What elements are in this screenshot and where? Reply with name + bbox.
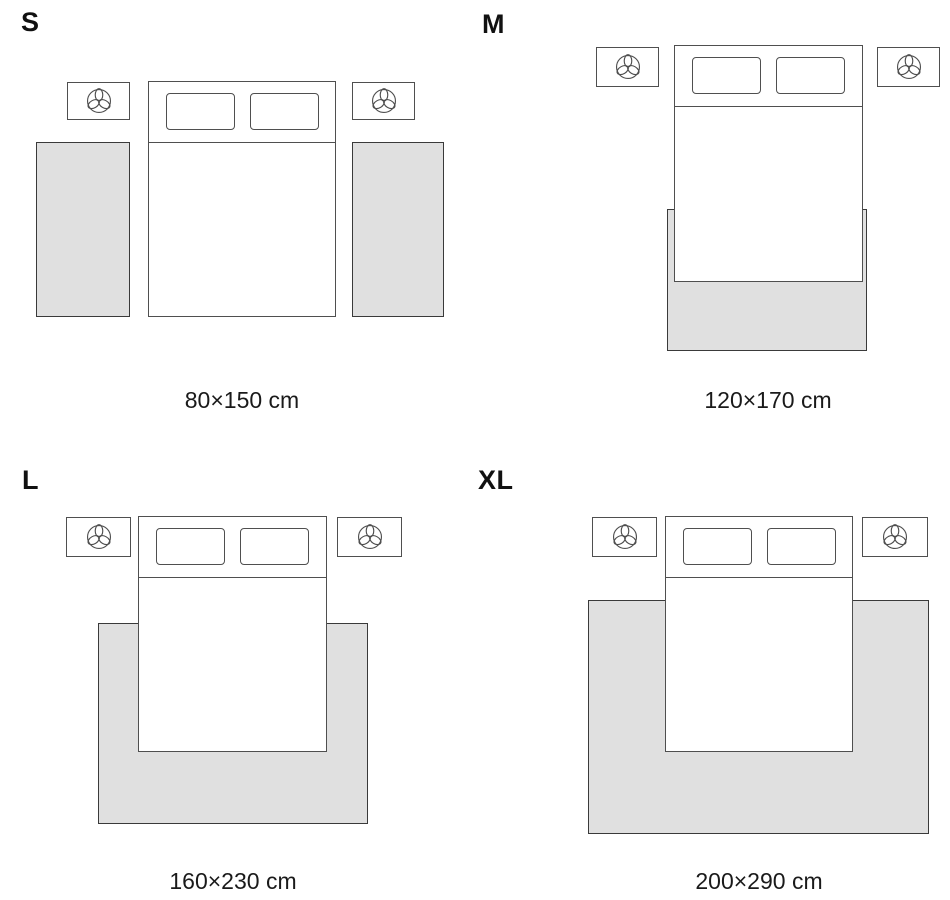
nightstand-left: [66, 517, 131, 557]
bed-headboard: [149, 82, 335, 143]
pillow-left: [692, 57, 761, 94]
pillow-right: [240, 528, 309, 565]
bed-headboard: [666, 517, 852, 578]
size-dimension-label: 200×290 cm: [609, 869, 909, 894]
bed: [674, 45, 863, 282]
plant-icon: [81, 83, 117, 119]
plant-icon: [610, 49, 646, 85]
plant-icon: [352, 519, 388, 555]
rug-runner-left: [36, 142, 130, 317]
plant-icon: [877, 519, 913, 555]
bed: [665, 516, 853, 752]
plant-icon: [81, 519, 117, 555]
rug-size-guide-diagram: S: [0, 0, 950, 900]
bed-headboard: [675, 46, 862, 107]
rug-runner-right: [352, 142, 444, 317]
size-dimension-label: 160×230 cm: [83, 869, 383, 894]
nightstand-right: [877, 47, 940, 87]
size-letter-m: M: [482, 11, 505, 38]
nightstand-right: [862, 517, 928, 557]
size-letter-s: S: [21, 9, 40, 36]
plant-icon: [607, 519, 643, 555]
nightstand-left: [67, 82, 130, 120]
size-letter-xl: XL: [478, 467, 514, 494]
pillow-right: [250, 93, 319, 130]
nightstand-right: [337, 517, 402, 557]
nightstand-left: [592, 517, 657, 557]
nightstand-left: [596, 47, 659, 87]
size-letter-l: L: [22, 467, 39, 494]
bed: [148, 81, 336, 317]
size-dimension-label: 120×170 cm: [618, 388, 918, 413]
plant-icon: [891, 49, 927, 85]
pillow-right: [767, 528, 836, 565]
pillow-right: [776, 57, 845, 94]
pillow-left: [683, 528, 752, 565]
pillow-left: [156, 528, 225, 565]
nightstand-right: [352, 82, 415, 120]
plant-icon: [366, 83, 402, 119]
bed-headboard: [139, 517, 326, 578]
size-dimension-label: 80×150 cm: [92, 388, 392, 413]
bed: [138, 516, 327, 752]
pillow-left: [166, 93, 235, 130]
